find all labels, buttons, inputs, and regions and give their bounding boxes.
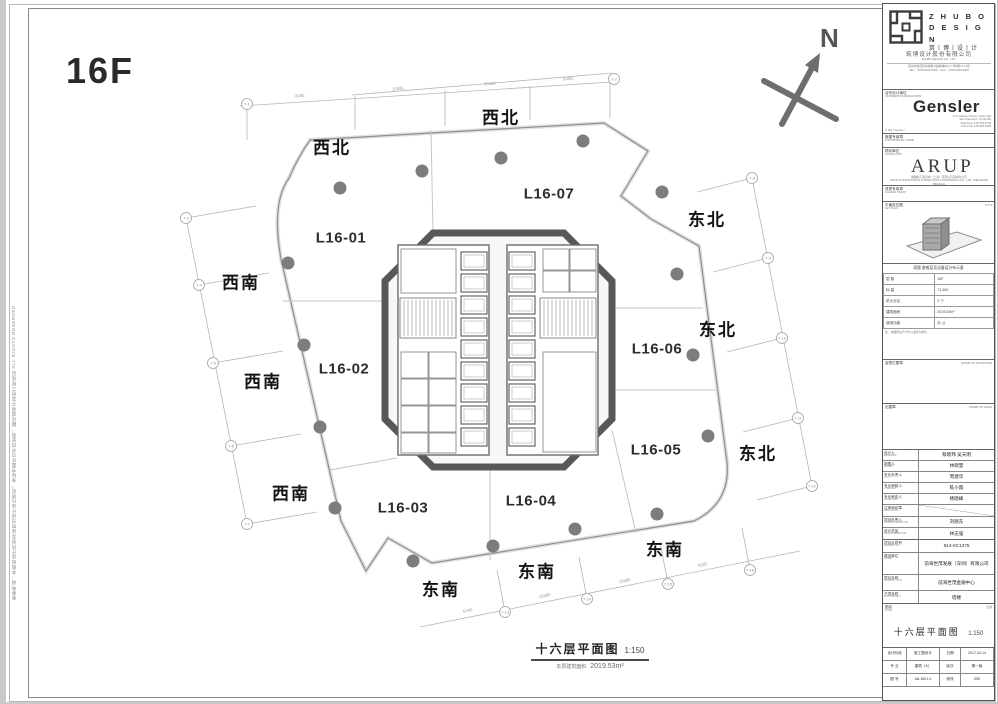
svg-text:7-16: 7-16 (746, 568, 755, 573)
svg-text:7-13: 7-13 (501, 610, 510, 615)
personnel-value: 林志强 (919, 528, 994, 539)
direction-label-sw: 西南 (272, 480, 310, 505)
gensler-copyright: © 2017 Gensler (885, 129, 905, 132)
north-arrow-icon: N (750, 15, 850, 130)
footer-cell: 修改 (940, 674, 961, 687)
service-core (385, 233, 612, 467)
zhubo-name-en-1: Z H U B O (929, 11, 994, 22)
drawing-title-label-en: TITLE (885, 609, 892, 612)
svg-text:N: N (820, 23, 839, 53)
svg-text:7-3: 7-3 (183, 216, 190, 221)
sign-label: 会签栏图章 (885, 361, 903, 365)
tb-zhubo-section: Z H U B O D E S I G N 筑丨博丨设丨计 筑博设计股份有限公司… (883, 4, 994, 90)
copyright-side-note: 重要申明：本图纸设计内容及版权归设计单位所有，未经书面许可不得复制、翻印或用于其… (11, 270, 23, 600)
svg-text:7-12: 7-12 (808, 484, 817, 489)
personnel-value: 陈小霞 (919, 483, 994, 493)
tb-signature-stamp-section: 会签栏图章 STAMP OF SIGNATURE (883, 360, 994, 404)
direction-label-sw: 西南 (244, 368, 282, 393)
zhubo-name-en-2: D E S I G N (929, 22, 994, 45)
tb-issue-stamp-section: 出图章 STAMP OF ISSUE (883, 404, 994, 450)
project-title: 前海世茂金融中心 (919, 575, 994, 590)
caption-scale: 1:150 (624, 646, 644, 655)
footer-cell: 设计阶段 (883, 648, 907, 661)
schedule-cell: 2 个 (935, 296, 994, 307)
svg-text:6795: 6795 (463, 607, 474, 614)
keyplan-scale: N.T.S (985, 203, 992, 207)
schedule-cell: 防火分区 (884, 296, 935, 307)
direction-label-se: 东南 (646, 536, 684, 561)
client-name: 前海世茂发展（深圳）有限公司 (919, 553, 994, 574)
drawing-scale-label: 比例 (986, 605, 992, 609)
unit-label: L16-05 (631, 442, 682, 459)
stamp2-label-en: LICENSE STAMP (885, 191, 906, 194)
svg-text:10480: 10480 (484, 81, 497, 87)
svg-text:7-4: 7-4 (196, 283, 203, 288)
personnel-value: 周建华 (919, 472, 994, 482)
svg-text:7-5: 7-5 (210, 361, 217, 366)
tb-arup-section: 顾问单位 CONSULTANT ARUP 奥雅纳工程咨询（上海）有限公司深圳分公… (883, 148, 994, 186)
footer-cell: 施工图设计 (907, 648, 940, 661)
svg-text:10480: 10480 (619, 577, 632, 584)
personnel-value: 刘晓东 (919, 517, 994, 527)
zhubo-company-en: ZHUBO DESIGN CO., LTD. (887, 58, 991, 61)
keyplan-label-en: KEY PLAN (885, 207, 903, 210)
caption-title: 十六层平面图 (535, 642, 619, 656)
arup-line-2: ARUP INTERNATIONAL CONSULTANTS (SHANGHAI… (886, 179, 992, 186)
subproject-name: 塔楼 (919, 591, 994, 604)
schedule-cell: 使用功能 (884, 318, 935, 329)
personnel-value: 蔡晓玮 吴天明 (919, 450, 994, 460)
tb-stamp1-section: 报建专用章 FOR APPROVAL STAMP (883, 134, 994, 148)
svg-text:6285: 6285 (698, 561, 709, 568)
svg-text:7-9: 7-9 (765, 256, 772, 261)
footer-cell: 建筑（A） (907, 661, 940, 674)
keyplan-axon-icon (893, 212, 985, 262)
svg-text:7-6: 7-6 (228, 444, 235, 449)
tb-drawing-title-section: 图名 TITLE 比例 十六层平面图 1:150 (883, 604, 994, 648)
unit-label: L16-02 (319, 361, 370, 378)
personnel-value: 杨晓峰 (919, 494, 994, 504)
footer-cell: 005 (961, 674, 994, 687)
svg-text:10495: 10495 (392, 86, 405, 92)
svg-text:7-10: 7-10 (778, 336, 787, 341)
zhubo-logo-icon (889, 10, 923, 44)
schedule-cell: 层 数 (884, 274, 935, 285)
footer-cell: 专 业 (883, 661, 907, 674)
unit-label: L16-07 (524, 186, 575, 203)
direction-label-ne: 东北 (699, 316, 737, 341)
schedule-cell: 16F (935, 274, 994, 285)
stamp1-label-en: FOR APPROVAL STAMP (885, 139, 914, 142)
direction-label-ne: 东北 (688, 206, 726, 231)
tb-project-section: 项目合同号PROJECT No.814-SC1275 建设单位CLIENT前海世… (883, 540, 994, 604)
schedule-table: 层 数16F 标 高71.400 防火分区2 个 建筑面积2019.53m² 使… (883, 273, 994, 329)
svg-text:10495: 10495 (539, 592, 552, 599)
drawing-title: 十六层平面图 (894, 627, 960, 637)
schedule-cell: 办 公 (935, 318, 994, 329)
tb-keyplan-section: 平面定位图 KEY PLAN N.T.S (883, 202, 994, 264)
schedule-header: 塔楼 避难层及设备层分布示意 (883, 264, 994, 273)
schedule-cell: 71.400 (935, 285, 994, 296)
tb-schedule-section: 塔楼 避难层及设备层分布示意 层 数16F 标 高71.400 防火分区2 个 … (883, 264, 994, 360)
consultant-label-en: CONSULTANT (885, 153, 902, 156)
footer-cell: 图 号 (883, 674, 907, 687)
footer-cell: 版次 (940, 661, 961, 674)
tb-gensler-section: 合作设计单位 COOPERATIVE DESIGN FIRM Gensler T… (883, 90, 994, 134)
unit-label: L16-03 (378, 500, 429, 517)
schedule-cell: 2019.53m² (935, 307, 994, 318)
schedule-cell: 标 高 (884, 285, 935, 296)
direction-label-nw: 西北 (482, 104, 520, 129)
direction-label-se: 东南 (422, 576, 460, 601)
tb-personnel-section: 设计人DESIGNED蔡晓玮 吴天明 制图人DRAWN林晓慧 专业负责人P.I.… (883, 450, 994, 540)
svg-text:7-1: 7-1 (244, 102, 251, 107)
svg-text:7-11: 7-11 (794, 416, 802, 421)
caption-area-value: 2019.53m² (590, 663, 623, 670)
issue-label-en: STAMP OF ISSUE (969, 405, 992, 409)
schedule-note: 注：本图所注尺寸均以毫米为单位 (883, 329, 994, 336)
unit-label: L16-01 (316, 230, 367, 247)
zhubo-address-2: TEL：0755-8339 9999 FAX：0755-8339 9998 (887, 69, 991, 72)
footer-cell: 第一版 (961, 661, 994, 674)
caption-area-label: 本层建筑面积 (556, 664, 586, 670)
svg-text:7-2: 7-2 (611, 77, 618, 82)
direction-label-nw: 西北 (313, 134, 351, 159)
direction-label-se: 东南 (518, 558, 556, 583)
drawing-caption: 十六层平面图1:150 本层建筑面积2019.53m² (505, 640, 675, 670)
footer-cell: 2017.04.14 (961, 648, 994, 661)
unit-label: L16-06 (632, 341, 683, 358)
direction-label-ne: 东北 (739, 440, 777, 465)
svg-text:7-15: 7-15 (664, 582, 673, 587)
issue-label: 出图章 (885, 405, 896, 409)
unit-label: L16-04 (506, 493, 557, 510)
personnel-stamp-cell (919, 505, 994, 516)
gensler-address-4: Facsimile 415.836.4599 (953, 125, 991, 128)
project-no: 814-SC1275 (919, 540, 994, 552)
direction-label-sw: 西南 (222, 269, 260, 294)
personnel-value: 林晓慧 (919, 461, 994, 471)
tb-stamp2-section: 资质专用章 LICENSE STAMP (883, 186, 994, 202)
schedule-cell: 建筑面积 (884, 307, 935, 318)
drawing-scale: 1:150 (968, 631, 983, 637)
footer-cell: 日期 (940, 648, 961, 661)
footer-cell: A8-1601.4 (907, 674, 940, 687)
svg-text:10495: 10495 (562, 76, 575, 82)
tb-footer-grid: 设计阶段 施工图设计 日期 2017.04.14 专 业 建筑（A） 版次 第一… (883, 648, 994, 687)
sign-label-en: STAMP OF SIGNATURE (961, 361, 992, 365)
svg-text:8295: 8295 (295, 93, 305, 99)
svg-text:7-7: 7-7 (244, 522, 251, 527)
svg-text:7-8: 7-8 (749, 176, 756, 181)
svg-text:7-14: 7-14 (583, 597, 592, 602)
drawing-sheet-page: 重要申明：本图纸设计内容及版权归设计单位所有，未经书面许可不得复制、翻印或用于其… (0, 0, 998, 704)
title-block: Z H U B O D E S I G N 筑丨博丨设丨计 筑博设计股份有限公司… (882, 3, 995, 701)
